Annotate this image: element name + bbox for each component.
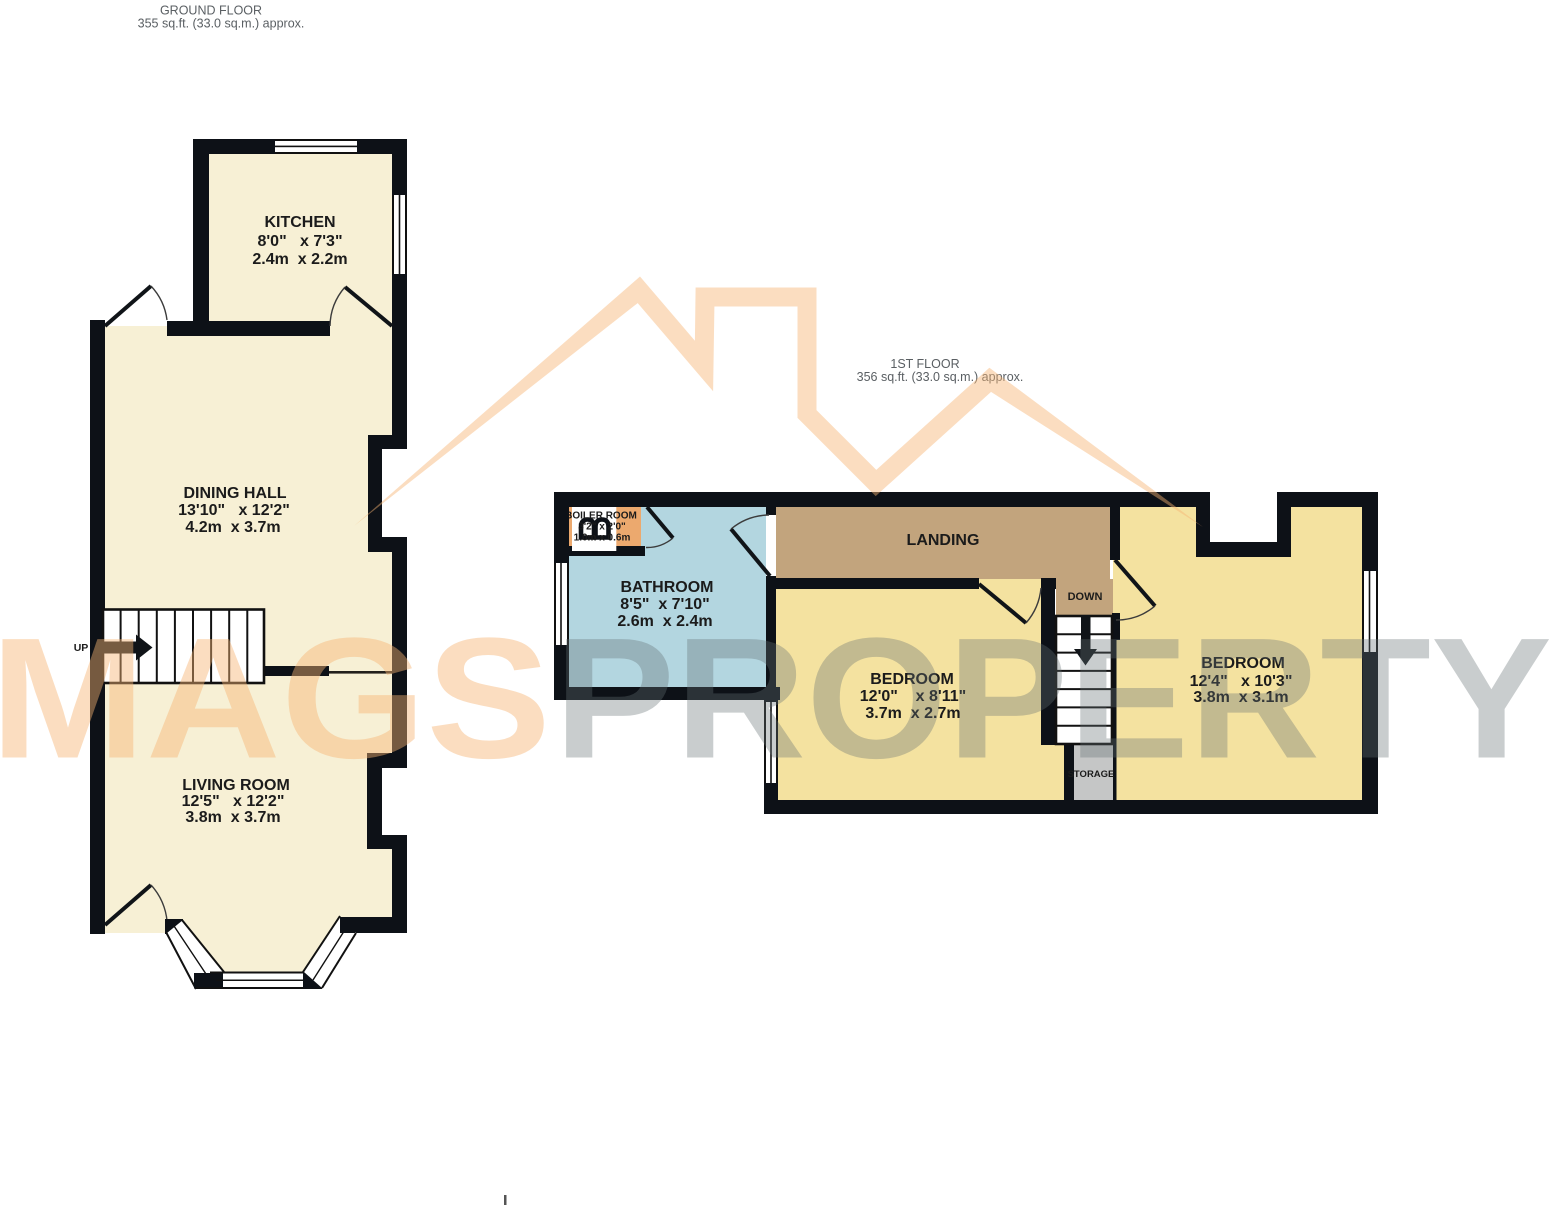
svg-text:LANDING: LANDING (907, 532, 980, 549)
svg-text:BOILER ROOM: BOILER ROOM (565, 511, 637, 522)
svg-text:1.0m x 0.6m: 1.0m x 0.6m (574, 533, 631, 544)
svg-text:GROUND FLOOR: GROUND FLOOR (160, 4, 262, 18)
svg-text:12'5" x 12'2": 12'5" x 12'2" (182, 793, 285, 810)
svg-text:3'2" x 2'0": 3'2" x 2'0" (578, 522, 626, 533)
svg-text:3.8m x 3.7m: 3.8m x 3.7m (185, 809, 280, 826)
svg-text:DOWN: DOWN (1068, 591, 1103, 603)
svg-text:BATHROOM: BATHROOM (620, 579, 713, 596)
svg-text:13'10" x 12'2": 13'10" x 12'2" (178, 502, 290, 519)
svg-text:1ST FLOOR: 1ST FLOOR (890, 357, 959, 371)
svg-text:2.4m x 2.2m: 2.4m x 2.2m (252, 251, 347, 268)
svg-text:DINING HALL: DINING HALL (183, 485, 286, 502)
svg-text:355 sq.ft. (33.0 sq.m.) approx: 355 sq.ft. (33.0 sq.m.) approx. (138, 17, 305, 31)
svg-text:PROPERTY: PROPERTY (554, 603, 1552, 795)
svg-text:8'0" x 7'3": 8'0" x 7'3" (257, 233, 342, 250)
svg-text:MAGS: MAGS (0, 603, 551, 795)
svg-text:KITCHEN: KITCHEN (264, 214, 335, 231)
svg-text:4.2m x 3.7m: 4.2m x 3.7m (185, 519, 280, 536)
